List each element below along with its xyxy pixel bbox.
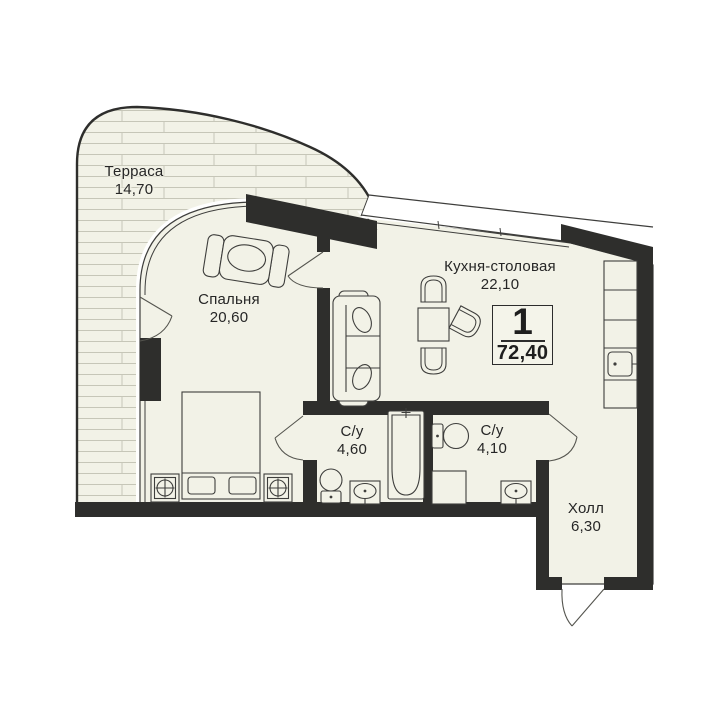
entrance-door [562, 589, 604, 626]
bedroom-kitchen-wall-stub [317, 224, 330, 252]
unit-badge: 1 72,40 [492, 305, 553, 365]
toilet [432, 424, 469, 449]
floor-plan: Терраса 14,70 Спальня 20,60 Кухня-столов… [0, 0, 726, 726]
bedroom-kitchen-wall [317, 288, 330, 402]
nightstand-right [264, 474, 292, 502]
sofa [333, 291, 380, 406]
unit-total-area: 72,40 [497, 343, 549, 364]
toilet [320, 469, 342, 503]
bathtub [388, 408, 424, 499]
chair [421, 348, 446, 374]
nightstand-left [151, 474, 179, 502]
pillow [229, 477, 256, 494]
unit-rooms-count: 1 [512, 306, 533, 338]
bottom-wall [75, 502, 549, 517]
bedroom-wall-pier [140, 338, 161, 401]
dining-table [418, 308, 449, 341]
hall-bottom-wall-left [536, 577, 562, 590]
pillow [188, 477, 215, 494]
floor-plan-drawing [0, 0, 726, 726]
washing-machine [432, 471, 466, 504]
hall-left-wall [536, 460, 549, 590]
sink [501, 481, 531, 505]
kitchen-counter [604, 261, 637, 408]
right-wall [637, 247, 653, 590]
kitchen-sink [608, 352, 632, 376]
bed [182, 392, 260, 499]
chair [421, 276, 446, 302]
sink [350, 481, 380, 505]
hall-bottom-wall-right [604, 577, 653, 590]
